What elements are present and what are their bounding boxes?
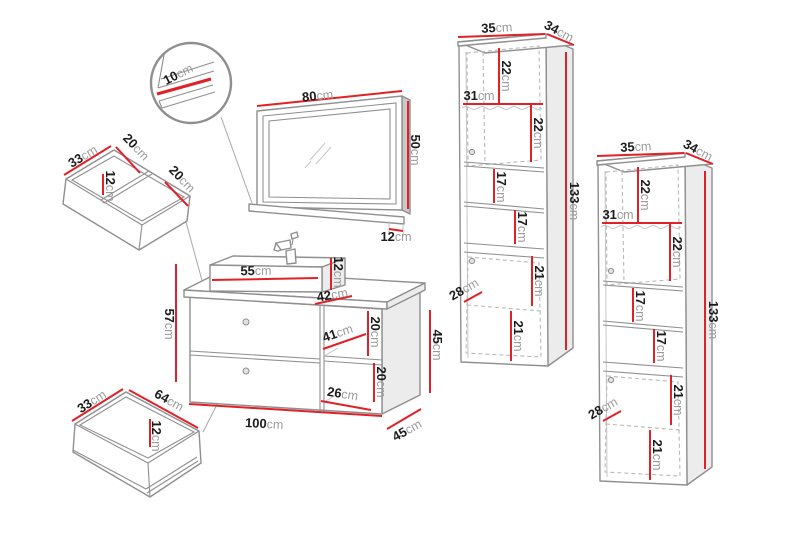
dim-basin-height: 12cm [331, 256, 346, 287]
dim-width: 100cm [245, 415, 284, 432]
dim-tc-right-upper1: 22cm [638, 179, 653, 210]
bathroom-furniture-dimension-diagram: 10cm 80cm 50cm 12cm 33cm 20cm 12cm 20cm … [0, 0, 800, 533]
detail-connector-line [221, 117, 252, 203]
dim-shelf-lower-height: 20cm [374, 366, 389, 397]
tall-cabinet-left: 35cm 34cm 31cm 22cm 22cm 17cm 17cm 21cm … [447, 17, 582, 366]
mirror-frame [257, 96, 402, 210]
tall-cabinet-right-body [597, 153, 713, 485]
dim-cabinet-height: 45cm [430, 329, 445, 360]
dim-tc-left-height: 133cm [567, 182, 582, 220]
washbasin-cabinet: 55cm 12cm 42cm 57cm 41cm 20cm 20cm 26cm … [162, 232, 445, 444]
dim-tc-right-inner-width: 31cm [602, 207, 633, 222]
dim-tc-right-height: 133cm [706, 301, 721, 339]
dim-tc-right-width: 35cm [620, 138, 652, 155]
dim-organizer-height: 12cm [103, 170, 118, 201]
dim-tc-left-shelf2: 17cm [515, 211, 530, 242]
mirror: 80cm 50cm 12cm [249, 86, 423, 244]
dim-tc-right-lower2: 21cm [650, 439, 665, 470]
dim-tc-left-width: 35cm [481, 19, 513, 36]
dim-mirror-height: 50cm [408, 134, 423, 165]
dim-total-height: 57cm [162, 308, 177, 339]
dim-depth: 45cm [390, 416, 425, 444]
dim-tc-left-lower1: 21cm [532, 265, 547, 296]
dim-tc-left-upper1: 22cm [499, 60, 514, 91]
diagram-canvas: 10cm 80cm 50cm 12cm 33cm 20cm 12cm 20cm … [0, 0, 800, 533]
tall-cabinet-left-body [458, 34, 574, 366]
dim-tc-right-shelf2: 17cm [654, 330, 669, 361]
dim-mirror-shelf-depth: 12cm [380, 229, 411, 244]
dim-mirror-width: 80cm [301, 86, 334, 104]
dim-tc-right-lower1: 21cm [671, 384, 686, 415]
drawer-knob [243, 368, 249, 374]
dim-tc-left-inner-width: 31cm [463, 88, 494, 103]
dim-shelf-upper-height: 20cm [368, 316, 383, 347]
dim-tc-left-shelf1: 17cm [494, 171, 509, 202]
drawer-knob [243, 319, 249, 325]
dim-tc-right-shelf1: 17cm [633, 290, 648, 321]
tall-cabinet-right: 35cm 34cm 31cm 22cm 22cm 17cm 17cm 21cm … [586, 136, 721, 485]
dim-tc-right-upper2: 22cm [670, 236, 685, 267]
dim-basin-width: 55cm [240, 263, 271, 279]
dim-tc-left-upper2: 22cm [531, 117, 546, 148]
dim-drawer-height: 12cm [149, 420, 164, 451]
dim-tc-left-lower2: 21cm [511, 320, 526, 351]
zoom-detail: 10cm [151, 43, 252, 203]
